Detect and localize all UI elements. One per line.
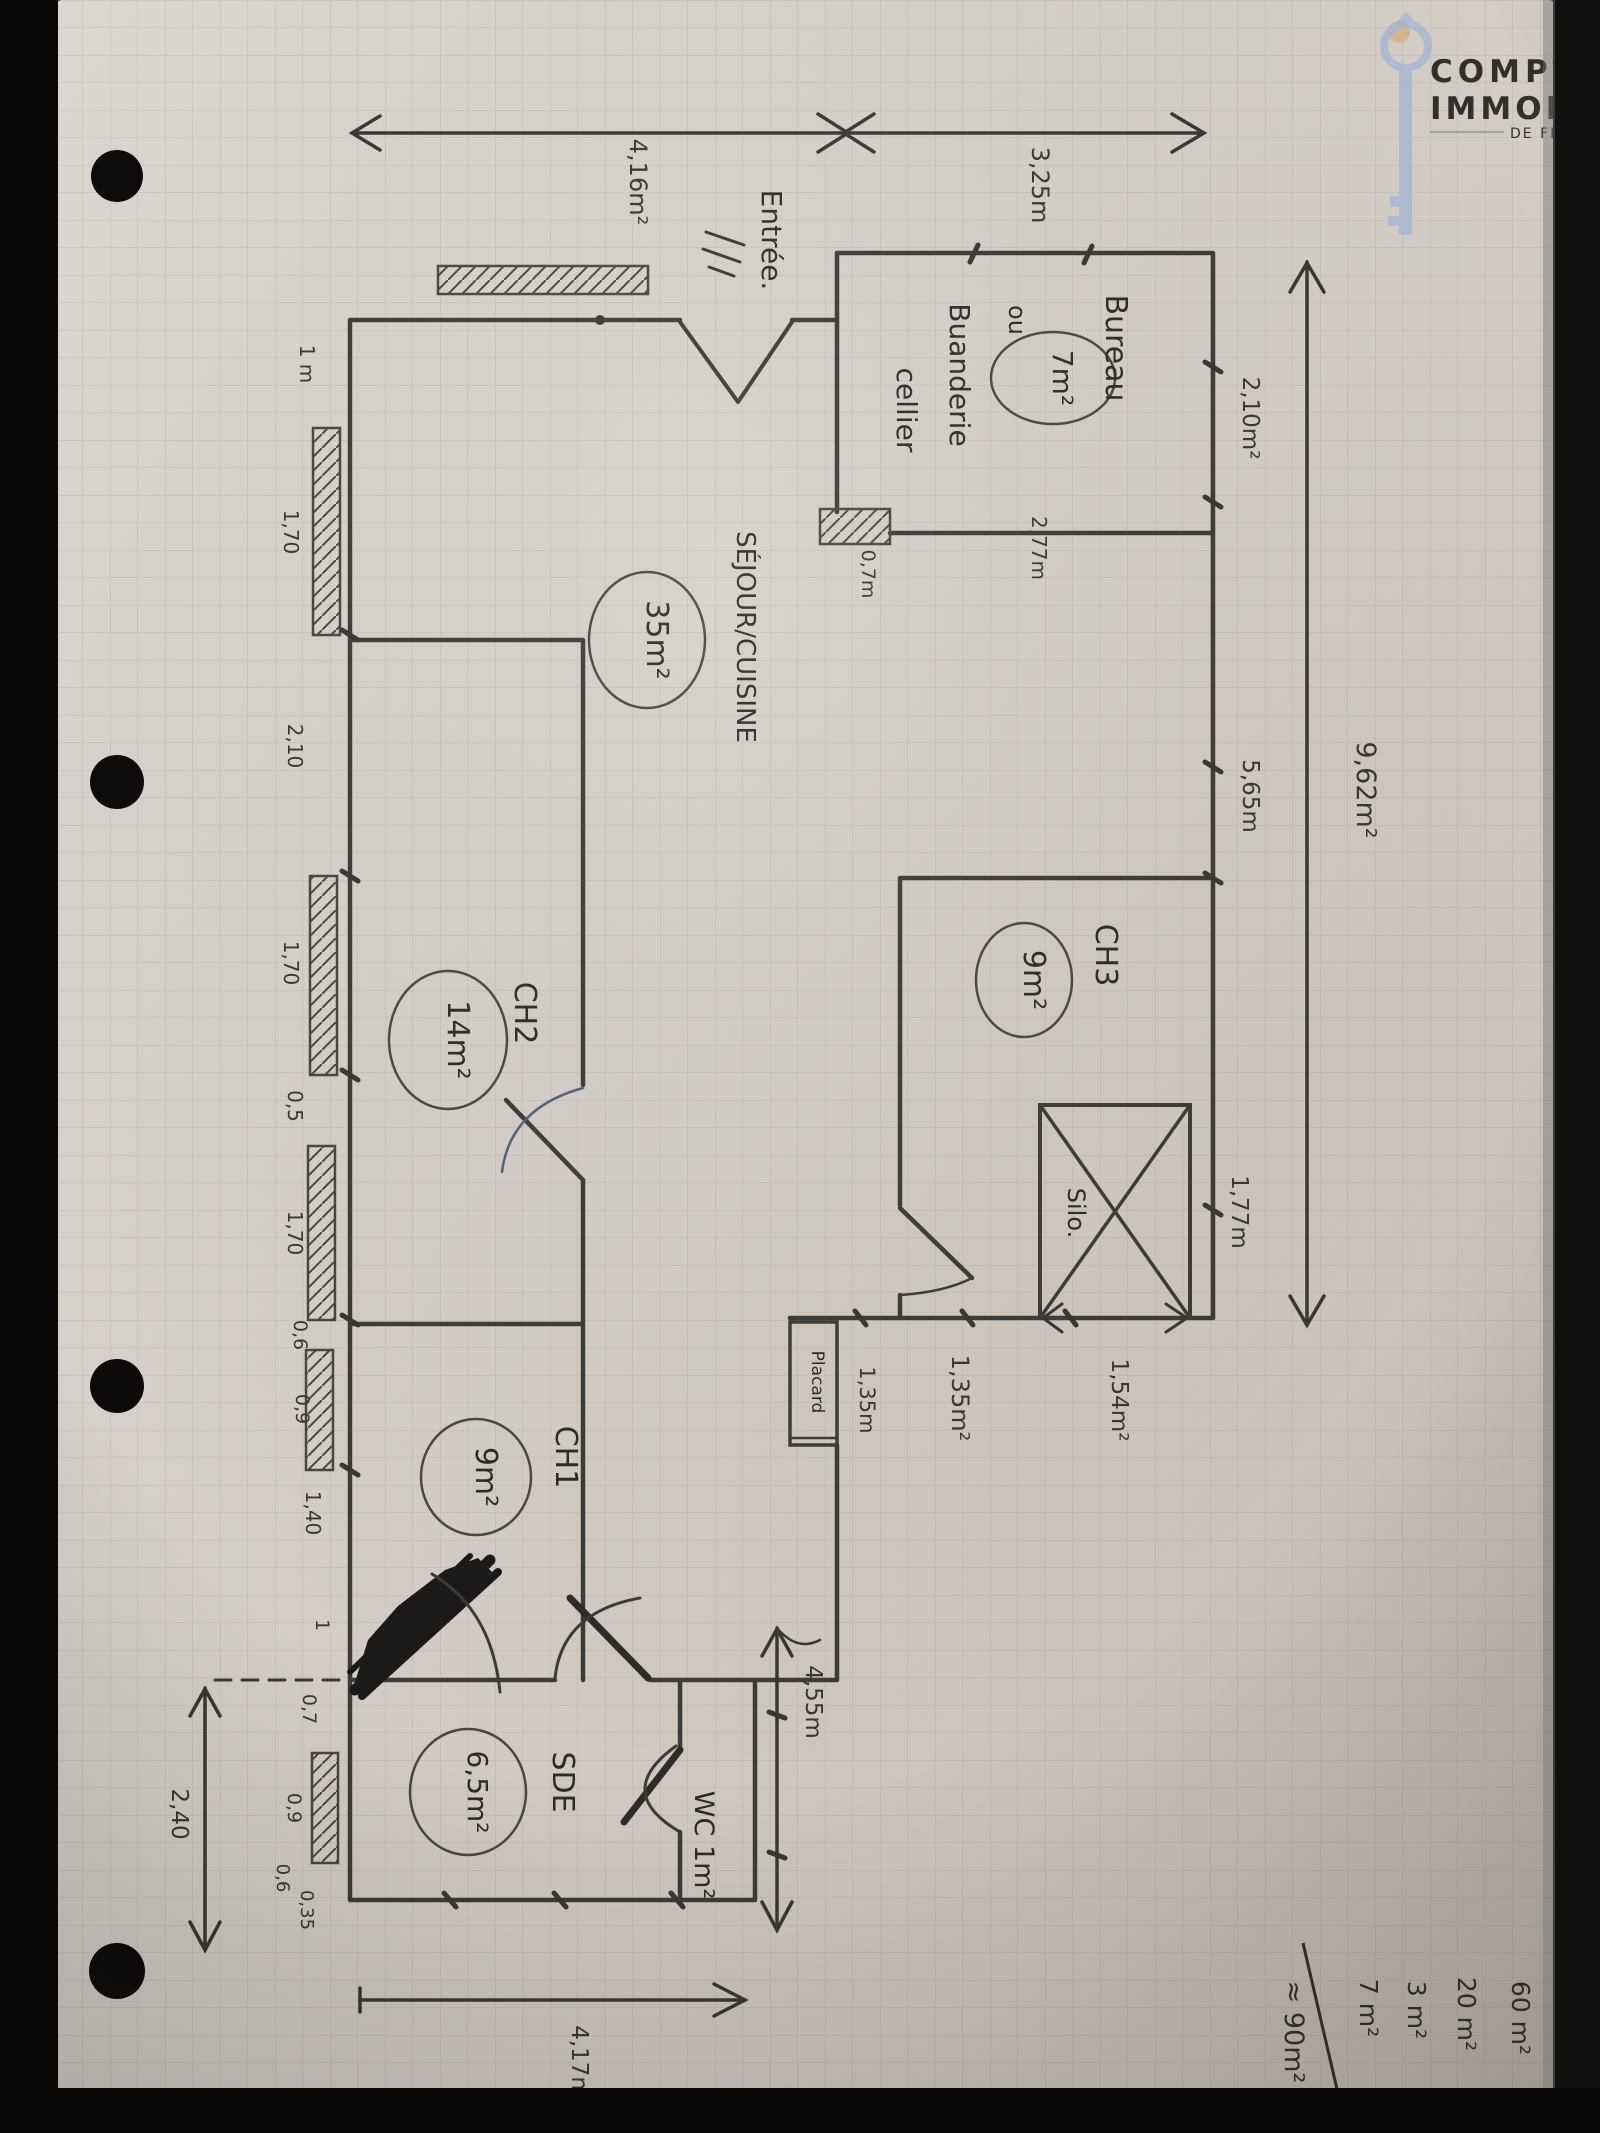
paper-edge-shadow xyxy=(1543,0,1555,2133)
photo-of-floor-plan: COMPTOIR IMMOBILIER DE FRANCE xyxy=(0,0,1600,2133)
photo-vignette xyxy=(56,0,1555,2092)
photo-edge-right xyxy=(1553,0,1600,2133)
photo-edge-bottom xyxy=(0,2088,1600,2133)
floor-plan-sketch: COMPTOIR IMMOBILIER DE FRANCE xyxy=(0,0,1600,2133)
photo-edge-left xyxy=(0,0,58,2133)
